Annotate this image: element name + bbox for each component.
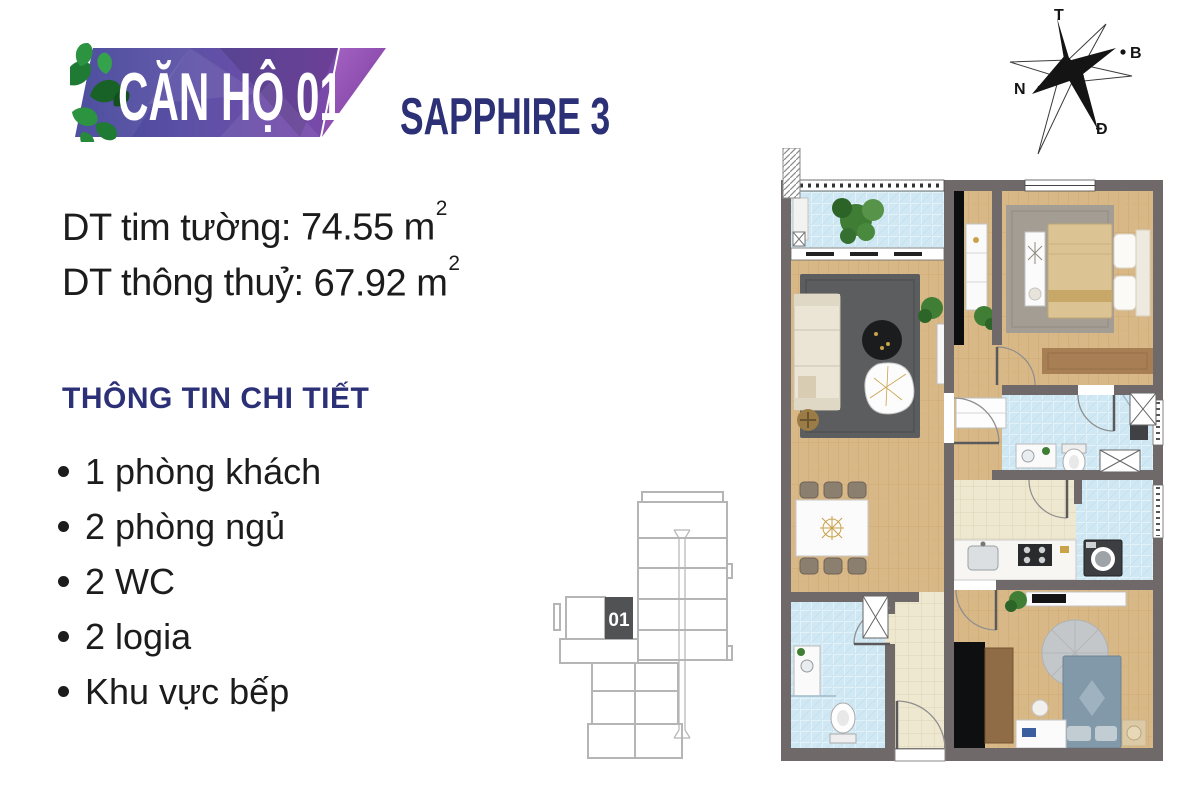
console-cabinet bbox=[966, 224, 987, 310]
bullet-icon bbox=[58, 521, 69, 532]
coffee-table-black bbox=[862, 320, 902, 360]
kitchen-sink bbox=[968, 546, 998, 570]
detail-text: 2 logia bbox=[85, 616, 191, 658]
stove-icon bbox=[1018, 544, 1052, 566]
key-plan-outline bbox=[554, 492, 732, 758]
detail-text: 2 phòng ngủ bbox=[85, 506, 285, 548]
washing-machine-icon bbox=[1084, 540, 1122, 576]
room-kitchen bbox=[954, 540, 1076, 580]
bullet-icon bbox=[58, 466, 69, 477]
detail-item: 1 phòng khách bbox=[58, 444, 321, 499]
side-mat bbox=[1122, 720, 1146, 746]
bullet-icon bbox=[58, 631, 69, 642]
detail-item: 2 logia bbox=[58, 609, 321, 664]
compass-label-b: B bbox=[1130, 45, 1142, 62]
plant-icon bbox=[797, 648, 805, 656]
entry-threshold bbox=[895, 749, 945, 761]
shaft-x bbox=[1130, 393, 1156, 425]
bullet-icon bbox=[58, 686, 69, 697]
area-line-net: DT thông thuỷ:67.92 m2 bbox=[62, 252, 460, 308]
key-plan: 01 bbox=[538, 480, 768, 792]
key-plan-unit-01: 01 bbox=[605, 597, 633, 639]
detail-text: 1 phòng khách bbox=[85, 451, 321, 493]
detail-item: 2 phòng ngủ bbox=[58, 499, 321, 554]
compass-label-t: T bbox=[1054, 7, 1064, 24]
bedroom1-mat bbox=[1042, 348, 1153, 374]
detail-item: Khu vực bếp bbox=[58, 664, 321, 719]
compass-label-d: Đ bbox=[1096, 121, 1108, 138]
detail-text: Khu vực bếp bbox=[85, 671, 289, 713]
wardrobe-bedroom2 bbox=[954, 642, 985, 748]
bullet-icon bbox=[58, 576, 69, 587]
compass-rose: T B N Đ bbox=[998, 4, 1188, 164]
project-name: SAPPHIRE 3 bbox=[400, 88, 610, 142]
coffee-table-white bbox=[865, 363, 914, 414]
room-dining bbox=[796, 482, 868, 574]
room-logia-2 bbox=[1084, 540, 1122, 576]
detail-item: 2 WC bbox=[58, 554, 321, 609]
sofa bbox=[794, 294, 840, 410]
detail-text: 2 WC bbox=[85, 561, 175, 603]
area-label: DT thông thuỷ: bbox=[62, 262, 304, 304]
compass-star-icon bbox=[1010, 18, 1132, 154]
tv-icon bbox=[1032, 594, 1066, 603]
area-sup: 2 bbox=[448, 252, 459, 275]
pillow bbox=[1114, 234, 1136, 268]
shaft-x bbox=[1100, 450, 1140, 472]
area-label: DT tim tường: bbox=[62, 207, 291, 249]
brown-runner bbox=[985, 648, 1013, 743]
shaft-hatch bbox=[783, 148, 800, 198]
area-sup: 2 bbox=[436, 197, 447, 220]
pillow bbox=[1114, 276, 1136, 310]
area-line-gross: DT tim tường:74.55 m2 bbox=[62, 196, 460, 252]
plant-icon bbox=[1042, 447, 1050, 455]
area-info: DT tim tường:74.55 m2 DT thông thuỷ:67.9… bbox=[62, 196, 460, 307]
headboard bbox=[1136, 230, 1150, 316]
details-heading: THÔNG TIN CHI TIẾT bbox=[62, 382, 369, 416]
toilet-icon bbox=[830, 703, 856, 743]
floor-plan bbox=[778, 148, 1168, 762]
shaft-x bbox=[863, 596, 888, 638]
apartment-badge: CĂN HỘ 01 SAPPHIRE 3 bbox=[70, 42, 610, 142]
area-value: 74.55 m bbox=[301, 207, 435, 249]
compass-label-n: N bbox=[1014, 81, 1026, 98]
brochure-page: CĂN HỘ 01 SAPPHIRE 3 DT tim tường:74.55 … bbox=[0, 0, 1200, 800]
living-balcony-door bbox=[791, 248, 944, 260]
badge-title: CĂN HỘ 01 bbox=[118, 57, 343, 134]
area-value: 67.92 m bbox=[314, 262, 448, 304]
bed-single bbox=[1063, 656, 1121, 748]
details-list: 1 phòng khách 2 phòng ngủ 2 WC 2 logia K… bbox=[58, 444, 321, 719]
unit-label: 01 bbox=[608, 610, 630, 631]
